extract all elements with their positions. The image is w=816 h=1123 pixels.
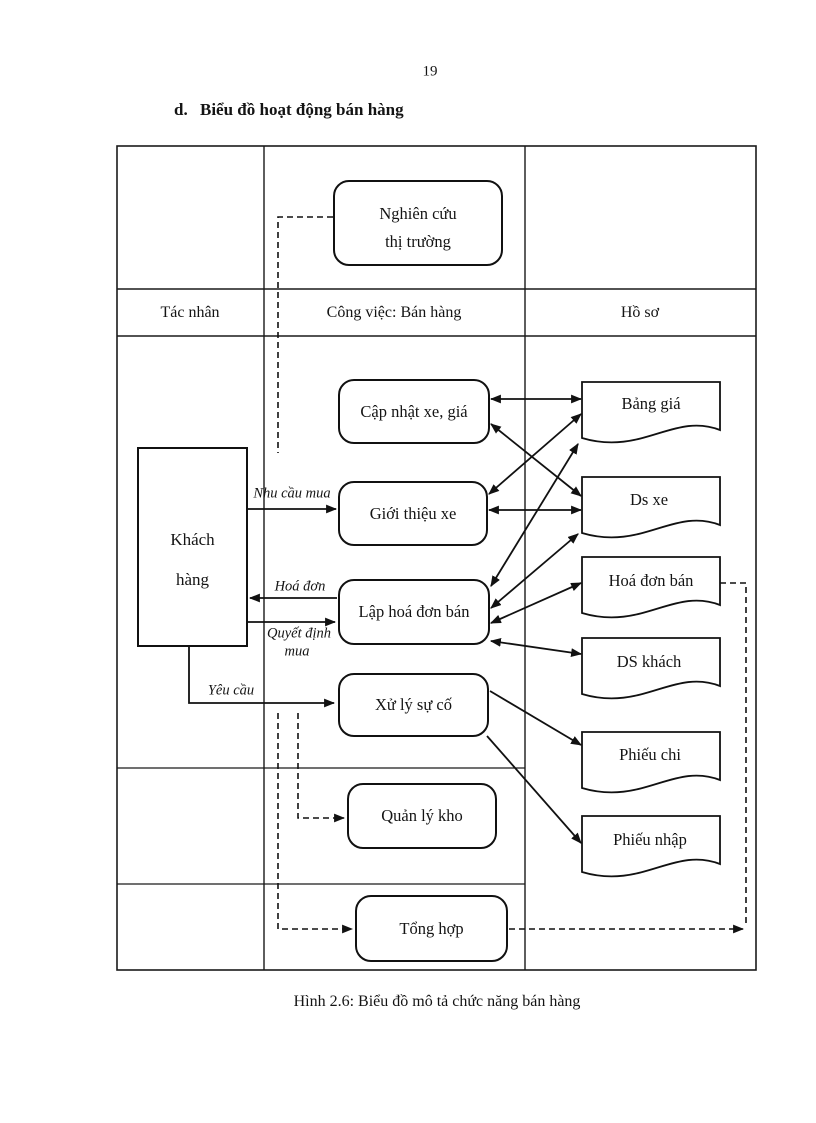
- document-label-phieu-chi: Phiếu chi: [619, 745, 681, 765]
- activity-tong-hop: Tổng hợp: [355, 895, 508, 962]
- flow-label-hoa-don: Hoá đơn: [275, 579, 326, 596]
- flow-label-quyet-dinh-mua: mua: [285, 644, 310, 661]
- actor-label-line1: Khách: [170, 520, 214, 560]
- flow-label-nhu-cau-mua: Nhu cầu mua: [253, 486, 330, 503]
- document-label-ds-khach: DS khách: [617, 652, 682, 672]
- arrow-xu-ly-phieu-chi: [490, 691, 581, 745]
- activity-nghien-cuu-line2: thị trường: [385, 228, 451, 256]
- activity-cap-nhat-xe-gia: Cập nhật xe, giá: [338, 379, 490, 444]
- activity-xu-ly-su-co: Xử lý sự cố: [338, 673, 489, 737]
- activity-nghien-cuu-thi-truong: Nghiên cứu thị trường: [333, 180, 503, 266]
- document-label-bang-gia: Bảng giá: [621, 394, 680, 414]
- document-label-phieu-nhap: Phiếu nhập: [613, 830, 687, 850]
- activity-lap-hoa-don-ban: Lập hoá đơn bán: [338, 579, 490, 645]
- flow-label-yeu-cau: Yêu cầu: [208, 683, 254, 700]
- arrow-lap-hoa-don-ds-khach: [491, 641, 581, 654]
- document-label-hoa-don-ban: Hoá đơn bán: [609, 571, 694, 591]
- dashed-to-quan-ly-kho: [298, 713, 344, 818]
- lane-header-work: Công việc: Bán hàng: [327, 304, 462, 322]
- lane-header-records: Hồ sơ: [621, 304, 659, 322]
- activity-gioi-thieu-xe: Giới thiệu xe: [338, 481, 488, 546]
- flow-label-quyet-dinh: Quyết định: [267, 626, 331, 643]
- document-label-ds-xe: Ds xe: [630, 490, 668, 510]
- arrow-lap-hoa-don-ds-xe: [491, 534, 578, 608]
- arrow-lap-hoa-don-bang-gia: [491, 444, 578, 586]
- activity-nghien-cuu-line1: Nghiên cứu: [379, 200, 456, 228]
- dashed-to-tong-hop: [278, 713, 352, 929]
- activity-quan-ly-kho: Quản lý kho: [347, 783, 497, 849]
- actor-label-line2: hàng: [176, 560, 209, 600]
- lane-header-actor: Tác nhân: [160, 304, 219, 322]
- dashed-hoa-don-ban-down: [720, 583, 746, 925]
- document-page: 19 d.Biểu đồ hoạt động bán hàng Hình 2.6…: [0, 0, 816, 1123]
- arrow-xu-ly-phieu-nhap: [487, 736, 581, 843]
- arrow-gioi-thieu-bang-gia: [489, 414, 581, 494]
- dashed-nghien-cuu-down: [278, 217, 333, 453]
- actor-box-khach-hang: Khách hàng: [137, 447, 248, 647]
- arrow-lap-hoa-don-hoa-don-ban: [491, 583, 581, 623]
